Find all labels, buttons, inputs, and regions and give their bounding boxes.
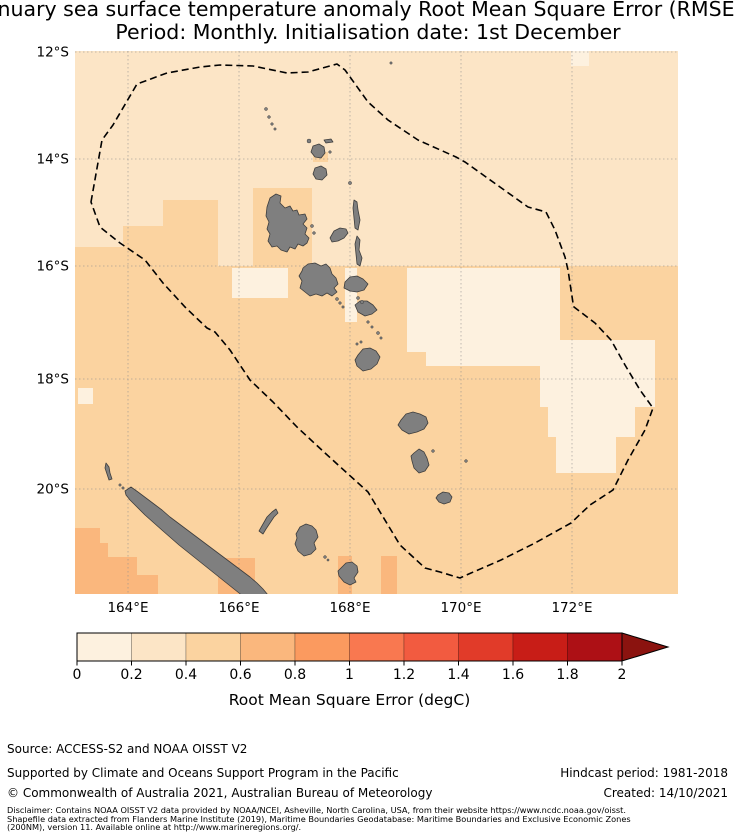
support-line: Supported by Climate and Oceans Support … [7, 764, 432, 784]
colorbar-segment [404, 633, 459, 661]
colorbar-segment [186, 633, 241, 661]
islet-dot [274, 128, 276, 130]
rmse-cell-bin-00-02 [540, 340, 655, 407]
islet-dot [307, 139, 311, 143]
y-tick-label: 20°S [37, 482, 70, 498]
rmse-cell-bin-04-06 [163, 200, 218, 266]
islet-dot [265, 108, 268, 111]
metadata-block: Hindcast period: 1981-2018 Created: 14/1… [560, 764, 728, 803]
x-tick-label: 172°E [551, 600, 592, 616]
islet-dot [311, 225, 314, 228]
colorbar-tick-label: 0 [73, 667, 82, 683]
rmse-cell-bin-06-08 [381, 556, 397, 594]
colorbar-segments [77, 633, 668, 661]
colorbar-segment [295, 633, 350, 661]
rmse-cell-bin-04-06 [123, 226, 163, 266]
map-plot-area [75, 51, 678, 609]
colorbar-segment [77, 633, 132, 661]
y-tick-label: 18°S [37, 372, 70, 388]
y-axis-tick-labels: 12°S14°S16°S18°S20°S [37, 45, 70, 498]
islet-dot [465, 460, 468, 463]
rmse-cell-bin-06-08 [137, 575, 158, 594]
colorbar-tick-label: 1.4 [447, 667, 469, 683]
rmse-cell-bin-04-06 [75, 247, 123, 266]
colorbar-tick-label: 0.8 [284, 667, 306, 683]
colorbar-segment [568, 633, 623, 661]
colorbar-tick-label: 0.2 [120, 667, 142, 683]
x-tick-label: 166°E [218, 600, 259, 616]
islet-dot [342, 306, 344, 308]
colorbar-tick-label: 1.8 [556, 667, 578, 683]
copyright-line: © Commonwealth of Australia 2021, Austra… [7, 784, 432, 804]
colorbar-segment [132, 633, 187, 661]
islet-dot [119, 484, 121, 486]
y-tick-label: 12°S [37, 45, 70, 61]
colorbar-segment [350, 633, 405, 661]
chart-subtitle: Period: Monthly. Initialisation date: 1s… [115, 20, 621, 44]
rmse-cell-bin-00-02 [78, 388, 93, 404]
rmse-cell-bin-06-08 [100, 543, 108, 594]
attribution-block: Supported by Climate and Oceans Support … [7, 764, 432, 803]
disclaimer-block: Disclaimer: Contains NOAA OISST V2 data … [7, 806, 631, 832]
colorbar-segment [513, 633, 568, 661]
y-tick-label: 16°S [37, 259, 70, 275]
source-text: Source: ACCESS-S2 and NOAA OISST V2 [7, 742, 247, 756]
islet-dot [329, 151, 332, 154]
colorbar-tick-label: 2 [618, 667, 627, 683]
colorbar-tick-label: 1.2 [393, 667, 415, 683]
islet-dot [327, 559, 329, 561]
rmse-cell-bin-00-02 [407, 268, 560, 352]
islet-dot [339, 302, 342, 305]
rmse-cell-bin-00-02 [232, 268, 288, 298]
x-axis-tick-labels: 164°E166°E168°E170°E172°E [107, 600, 592, 616]
islet-dot [371, 326, 373, 328]
rmse-map-figure: January sea surface temperature anomaly … [0, 0, 736, 736]
colorbar-ticks: 00.20.40.60.811.21.41.61.82 [73, 661, 627, 683]
y-tick-label: 14°S [37, 152, 70, 168]
disclaimer-line: (200NM), version 11. Available online at… [7, 823, 631, 832]
islet-dot [313, 232, 316, 235]
islet-dot [380, 337, 382, 339]
colorbar-extend-arrow [622, 633, 668, 661]
islet-dot [432, 450, 435, 453]
islet-dot [122, 487, 124, 489]
islet-dot [356, 343, 358, 345]
colorbar-segment [241, 633, 296, 661]
islet-dot [271, 123, 274, 126]
colorbar: 00.20.40.60.811.21.41.61.82 [73, 633, 668, 683]
x-tick-label: 168°E [329, 600, 370, 616]
islet-dot [390, 62, 392, 64]
islet-dot [360, 341, 362, 343]
islet-dot [377, 332, 380, 335]
islet-dot [348, 181, 351, 184]
colorbar-tick-label: 0.6 [229, 667, 251, 683]
rmse-cell-bin-06-08 [108, 557, 137, 594]
island-mota-lava [324, 139, 333, 143]
colorbar-tick-label: 1 [345, 667, 354, 683]
colorbar-tick-label: 0.4 [175, 667, 197, 683]
islet-dot [336, 298, 339, 301]
colorbar-label: Root Mean Square Error (degC) [229, 691, 471, 709]
islet-dot [324, 556, 327, 559]
islet-dot [268, 116, 271, 119]
created-date: Created: 14/10/2021 [560, 784, 728, 804]
rmse-cell-bin-00-02 [571, 51, 589, 66]
x-tick-label: 164°E [107, 600, 148, 616]
rmse-cell-bin-00-02 [556, 437, 616, 473]
hindcast-period: Hindcast period: 1981-2018 [560, 764, 728, 784]
colorbar-tick-label: 1.6 [502, 667, 524, 683]
rmse-cell-bin-00-02 [548, 407, 635, 437]
islet-dot [357, 297, 360, 300]
chart-title: January sea surface temperature anomaly … [0, 0, 736, 21]
rmse-cell-bin-06-08 [75, 528, 100, 594]
islet-dot [367, 321, 370, 324]
x-tick-label: 170°E [440, 600, 481, 616]
colorbar-segment [459, 633, 514, 661]
islet-dot [360, 300, 363, 303]
